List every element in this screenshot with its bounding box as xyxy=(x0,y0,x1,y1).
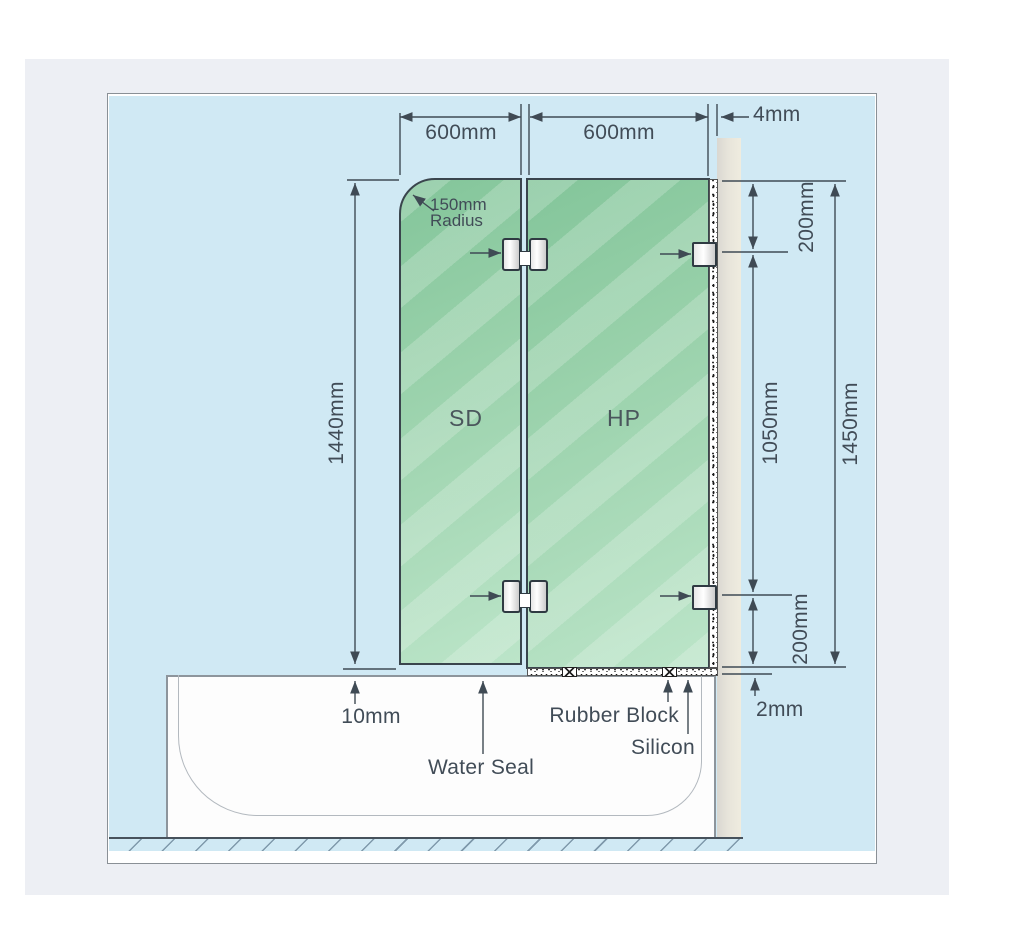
silicon-strip-bottom xyxy=(527,668,718,676)
hinge-center-lower xyxy=(502,580,548,613)
callout-silicon: Silicon xyxy=(533,736,695,760)
hinge-pin xyxy=(519,593,531,608)
hinge-leaf xyxy=(529,580,548,613)
rubber-block-right xyxy=(662,667,677,677)
radius-note-line2: Radius xyxy=(430,213,487,229)
dim-overall-height: 1450mm xyxy=(839,354,863,494)
dim-floor-gap: 2mm xyxy=(756,698,804,722)
hinge-leaf xyxy=(529,238,548,271)
dim-top-offset: 200mm xyxy=(795,172,819,262)
callout-rubber-block: Rubber Block xyxy=(517,704,679,728)
panel-sd-label: SD xyxy=(449,405,483,432)
dim-bottom-gap: 10mm xyxy=(321,705,421,729)
dim-mid-span: 1050mm xyxy=(759,353,783,493)
dim-wall-gap: 4mm xyxy=(753,103,801,127)
dim-bottom-offset: 200mm xyxy=(789,584,813,674)
wall-bracket-upper xyxy=(692,242,717,267)
hinge-center-upper xyxy=(502,238,548,271)
hinge-pin xyxy=(519,251,531,266)
wall-bracket-lower xyxy=(692,585,717,610)
diagram-page: 600mm 600mm 4mm 150mm Radius 1440mm SD H… xyxy=(0,0,1024,942)
floor-hatch xyxy=(109,839,743,851)
rubber-block-left xyxy=(562,667,577,677)
wall xyxy=(717,138,741,838)
dim-hp-width: 600mm xyxy=(530,121,708,145)
radius-note: 150mm Radius xyxy=(430,197,487,229)
dim-panel-height: 1440mm xyxy=(324,353,350,493)
dim-sd-width: 600mm xyxy=(400,121,522,145)
panel-hp-label: HP xyxy=(607,405,641,432)
